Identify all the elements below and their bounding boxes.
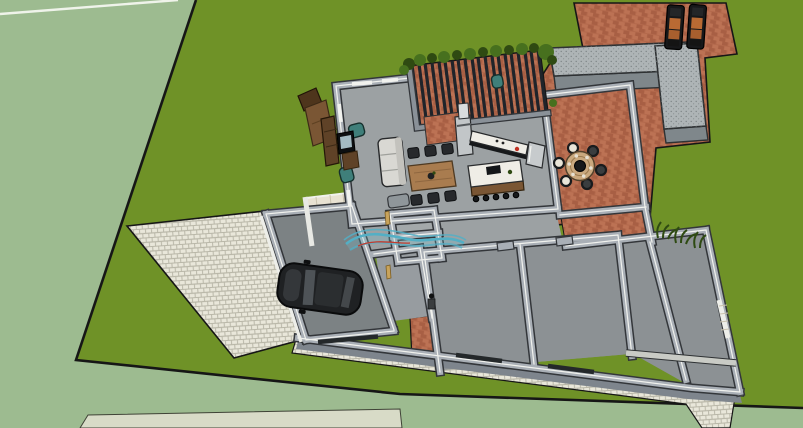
entry-statue[interactable] [428, 293, 435, 309]
sun-lounger[interactable] [665, 5, 685, 50]
coffee-table[interactable] [387, 194, 409, 209]
sun-lounger[interactable] [687, 4, 707, 49]
sofa-gray[interactable] [378, 137, 407, 187]
table-center [575, 161, 586, 172]
kitchen-island[interactable] [468, 160, 524, 202]
roof [314, 272, 344, 308]
bench-texture [655, 43, 706, 129]
model-viewport[interactable] [0, 0, 803, 428]
door-leaf[interactable] [385, 211, 390, 225]
fridge[interactable] [526, 142, 545, 168]
island-plant [508, 170, 512, 174]
scene-canvas[interactable] [0, 0, 803, 428]
door-leaf[interactable] [386, 265, 391, 279]
closet-notch [497, 241, 514, 251]
tv-console [342, 151, 359, 170]
closet-notch [556, 236, 573, 246]
red-knob [515, 147, 519, 151]
dining-set[interactable] [407, 143, 456, 205]
